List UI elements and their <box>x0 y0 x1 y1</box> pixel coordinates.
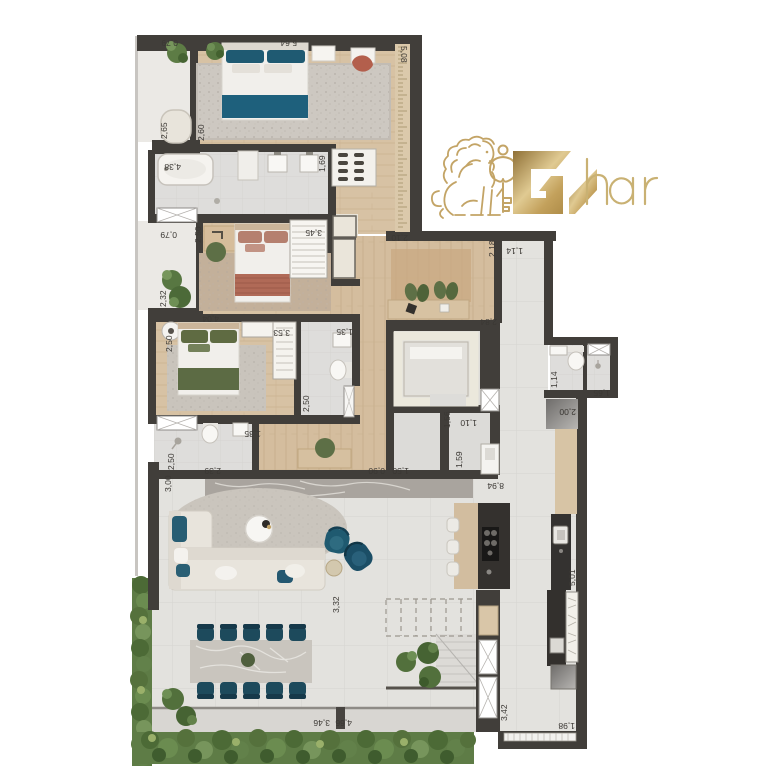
svg-text:2,50: 2,50 <box>301 395 311 412</box>
svg-text:4,04: 4,04 <box>202 314 219 324</box>
svg-text:5,64: 5,64 <box>280 38 297 48</box>
svg-text:5,08: 5,08 <box>399 46 409 63</box>
svg-text:1,35: 1,35 <box>336 327 353 337</box>
svg-text:2,50: 2,50 <box>166 453 176 470</box>
svg-text:2,00: 2,00 <box>559 407 576 417</box>
svg-text:2,60: 2,60 <box>196 124 206 141</box>
svg-text:2,65: 2,65 <box>159 122 169 139</box>
svg-text:3,00: 3,00 <box>163 475 173 492</box>
svg-text:1,50: 1,50 <box>392 466 409 476</box>
svg-text:1,10: 1,10 <box>460 418 477 428</box>
svg-text:1,69: 1,69 <box>317 155 327 172</box>
svg-text:4,66: 4,66 <box>335 718 352 728</box>
svg-text:1,35: 1,35 <box>244 429 261 439</box>
svg-text:2,10: 2,10 <box>391 233 408 243</box>
svg-text:3,32: 3,32 <box>331 596 341 613</box>
svg-text:1,14: 1,14 <box>506 246 523 256</box>
svg-text:4,38: 4,38 <box>164 162 181 172</box>
svg-text:2,39: 2,39 <box>204 466 221 476</box>
svg-text:0,79: 0,79 <box>161 38 178 48</box>
svg-text:1,65: 1,65 <box>593 388 610 398</box>
svg-text:0,79: 0,79 <box>160 230 177 240</box>
svg-text:8,94: 8,94 <box>487 481 504 491</box>
svg-text:3,42: 3,42 <box>499 704 509 721</box>
svg-text:2,84: 2,84 <box>480 317 497 327</box>
svg-text:2,50: 2,50 <box>193 226 203 243</box>
svg-text:3,45: 3,45 <box>305 228 322 238</box>
svg-text:5,01: 5,01 <box>567 569 577 586</box>
svg-text:2,32: 2,32 <box>158 290 168 307</box>
svg-text:2,50: 2,50 <box>164 335 174 352</box>
svg-text:3,53: 3,53 <box>273 328 290 338</box>
svg-text:1,59: 1,59 <box>454 451 464 468</box>
svg-text:1,98: 1,98 <box>558 721 575 731</box>
svg-text:1,14: 1,14 <box>549 371 559 388</box>
svg-text:1,56: 1,56 <box>442 411 452 428</box>
svg-text:0,90: 0,90 <box>368 466 385 476</box>
svg-text:3,46: 3,46 <box>313 718 330 728</box>
svg-text:2,18: 2,18 <box>487 240 497 257</box>
